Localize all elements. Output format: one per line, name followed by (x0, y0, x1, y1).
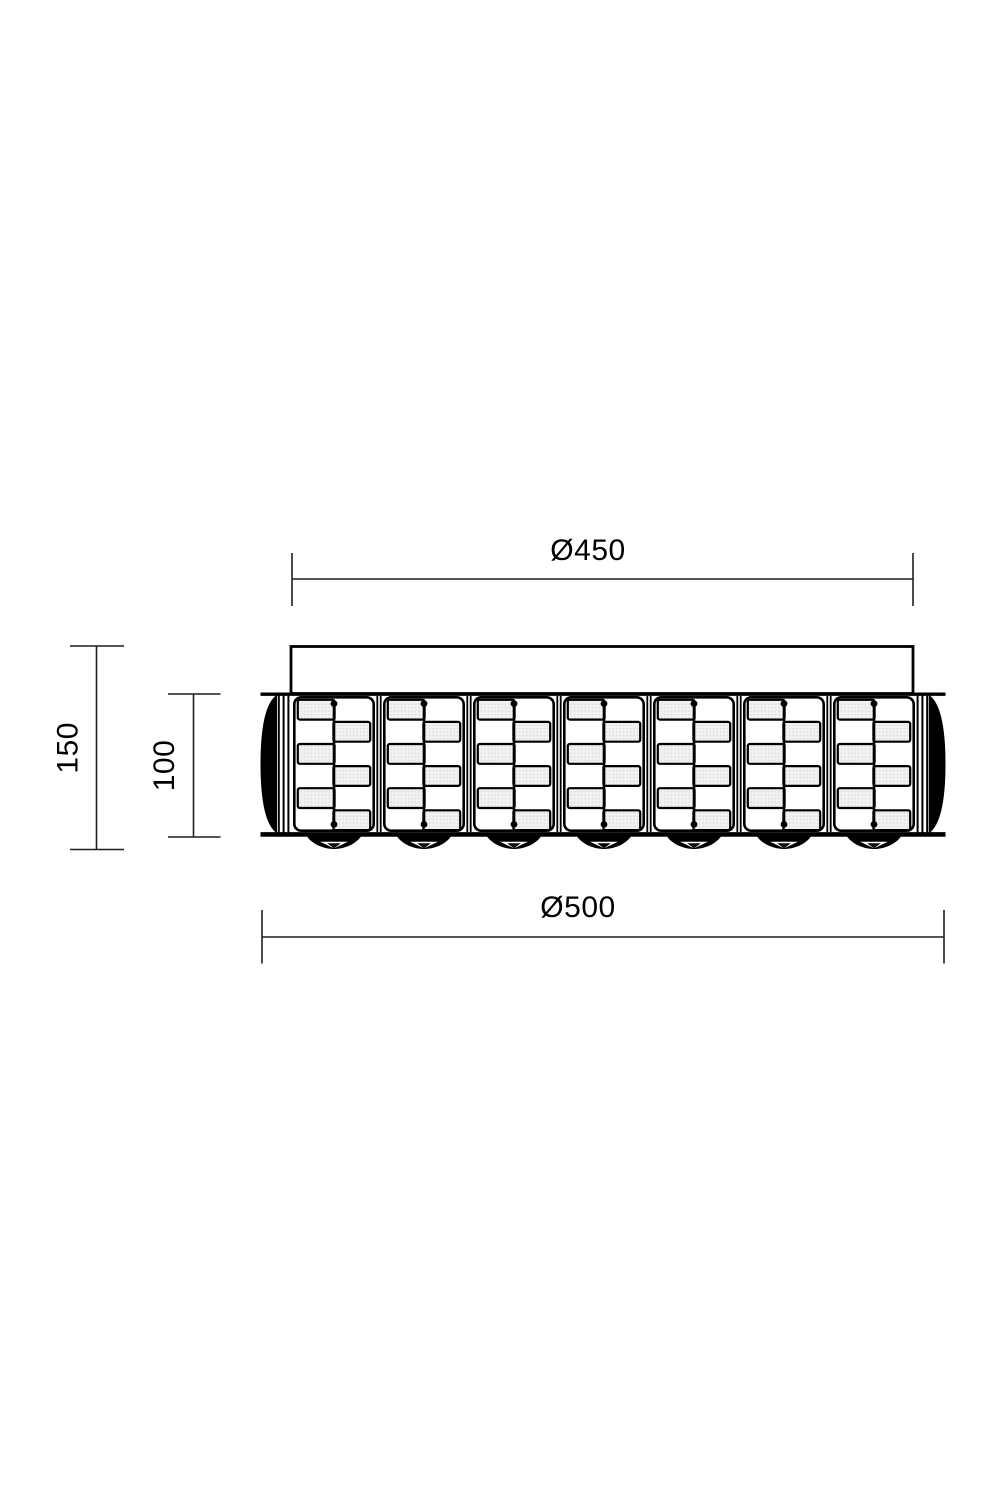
crystal-panel (654, 697, 733, 830)
end-cap-ribs-right (918, 695, 928, 833)
dim-label-body-diameter: Ø500 (540, 891, 615, 924)
dim-canopy-diameter: Ø450 (292, 534, 913, 606)
crystal-panel (384, 697, 463, 830)
crystal-panel (834, 697, 913, 830)
dim-body-diameter: Ø500 (262, 891, 944, 964)
crystal-panel (294, 697, 373, 830)
dim-label-canopy-diameter: Ø450 (550, 534, 625, 567)
finial (307, 837, 361, 850)
fixture-body (261, 694, 946, 849)
finial (577, 837, 631, 850)
dim-label-overall-height: 150 (52, 722, 85, 774)
finial (667, 837, 721, 850)
finial (847, 837, 901, 850)
dim-body-height: 100 (148, 694, 221, 837)
ceiling-canopy (291, 647, 913, 694)
crystal-panel (474, 697, 553, 830)
crystal-panel (744, 697, 823, 830)
drawing-canvas: Ø450 Ø500 150 100 (0, 0, 1000, 1500)
dim-label-body-height: 100 (148, 740, 181, 792)
crystal-panel (564, 697, 643, 830)
end-cap-right (929, 695, 946, 834)
dim-overall-height: 150 (52, 646, 125, 850)
finial (487, 837, 541, 850)
finial (397, 837, 451, 850)
end-cap-left (261, 695, 278, 834)
finial (757, 837, 811, 850)
dimension-drawing: Ø450 Ø500 150 100 (0, 0, 1000, 1500)
end-cap-ribs-left (279, 695, 289, 833)
